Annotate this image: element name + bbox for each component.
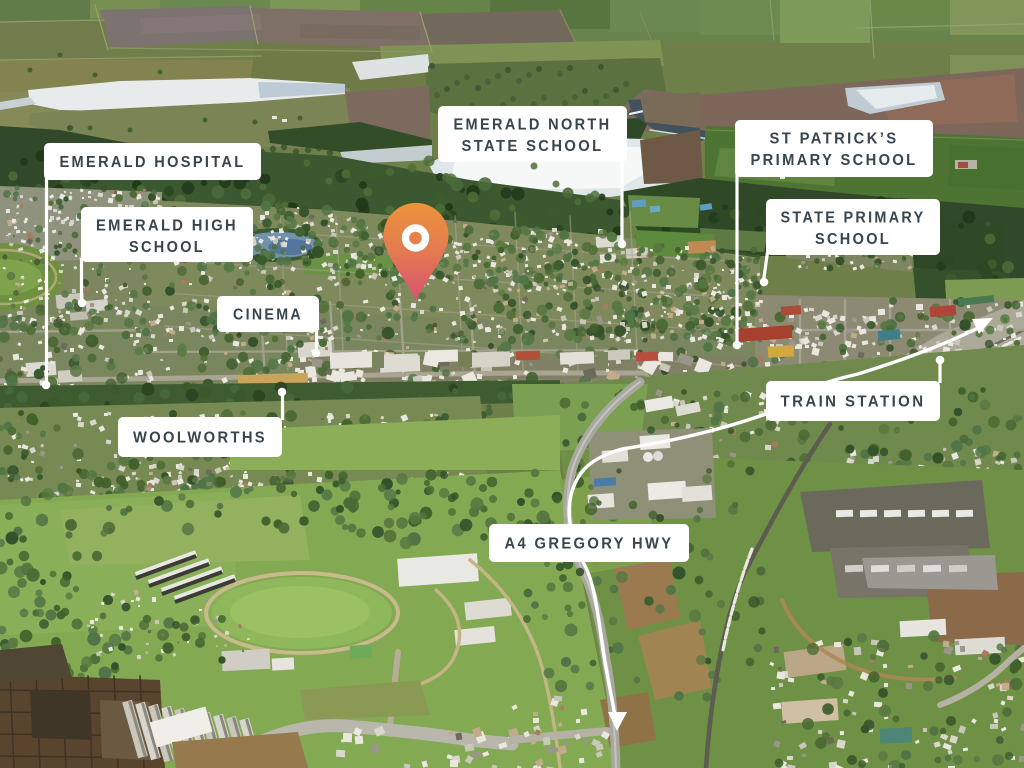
svg-text:CINEMA: CINEMA [233, 307, 303, 324]
svg-text:EMERALD NORTH: EMERALD NORTH [454, 117, 612, 134]
svg-text:EMERALD HOSPITAL: EMERALD HOSPITAL [60, 154, 246, 171]
svg-text:SCHOOL: SCHOOL [815, 231, 891, 248]
svg-text:A4 GREGORY HWY: A4 GREGORY HWY [505, 536, 674, 553]
svg-text:SCHOOL: SCHOOL [129, 239, 205, 256]
svg-text:STATE SCHOOL: STATE SCHOOL [462, 138, 604, 155]
svg-text:WOOLWORTHS: WOOLWORTHS [133, 430, 267, 447]
svg-text:ST PATRICK’S: ST PATRICK’S [770, 131, 899, 148]
svg-text:PRIMARY SCHOOL: PRIMARY SCHOOL [751, 152, 918, 169]
svg-text:TRAIN STATION: TRAIN STATION [781, 394, 926, 411]
svg-text:STATE PRIMARY: STATE PRIMARY [781, 210, 926, 227]
svg-text:EMERALD HIGH: EMERALD HIGH [96, 218, 238, 235]
